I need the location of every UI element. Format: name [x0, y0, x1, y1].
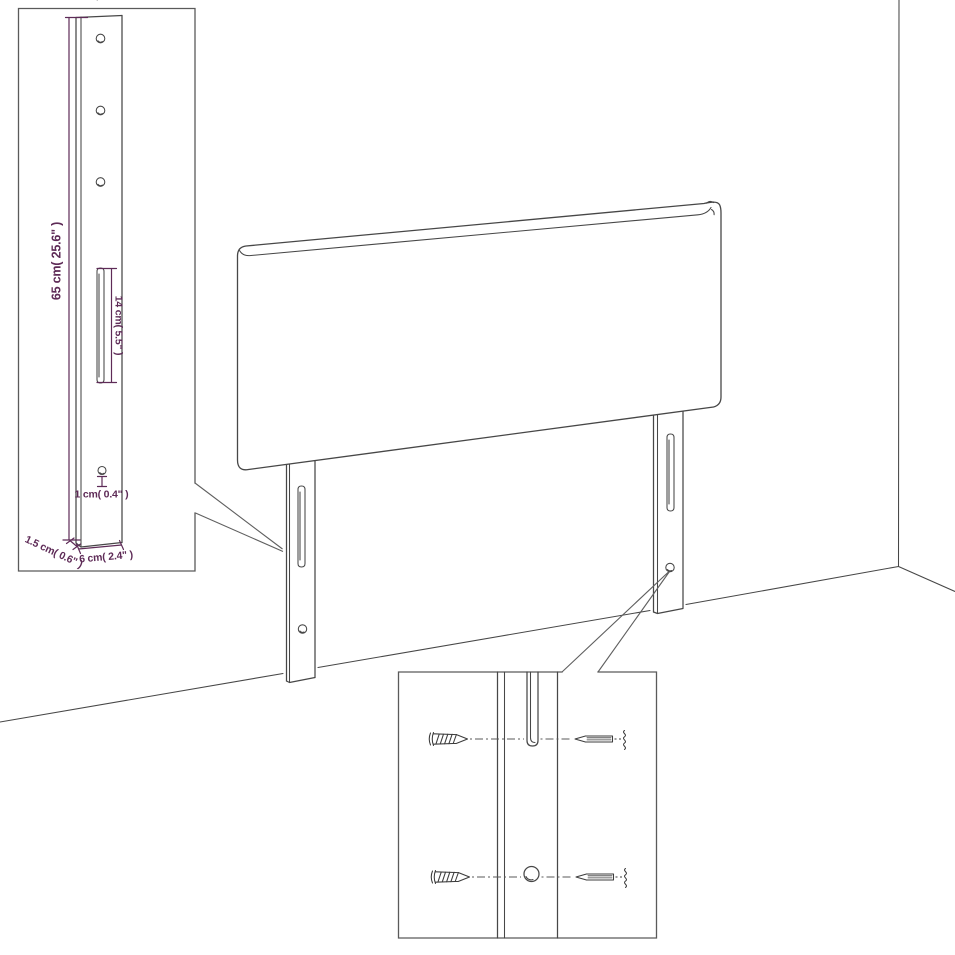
- leg-slot: [667, 434, 674, 511]
- magnified-leg-strip: [498, 672, 558, 938]
- leg-hole: [298, 625, 306, 633]
- screw-side-icon-top: [575, 731, 626, 750]
- mounting-post-drawing: [76, 16, 122, 548]
- screw-head-squiggle: [624, 869, 626, 888]
- dim-height-label: 65 cm( 25.6" ): [49, 222, 63, 300]
- inset-screw-detail: [399, 672, 657, 938]
- headboard: [238, 201, 722, 469]
- callout-lines-post: [195, 483, 283, 552]
- headboard-leg-right: [654, 410, 684, 614]
- diagram-canvas: 65 cm( 25.6" ) 14 cm( 5.5" ) 1 cm( 0.4" …: [0, 0, 955, 955]
- leg-hole: [666, 563, 674, 571]
- floor-line-left: [0, 567, 899, 723]
- post-hole-bottom: [96, 178, 105, 187]
- wall-corner-line: [899, 0, 900, 567]
- dim-slot-label: 14 cm( 5.5" ): [112, 296, 124, 356]
- screw-front-icon-bottom: [431, 871, 469, 884]
- post-hole-top: [96, 34, 105, 43]
- post-hole-middle: [96, 106, 105, 115]
- floor-line-right: [899, 567, 955, 592]
- screw-front-icon-top: [429, 733, 467, 746]
- dim-hole-label: 1 cm( 0.4" ): [75, 489, 129, 501]
- dim-width-label: 6 cm( 2.4" ): [79, 549, 134, 566]
- callout-lines-screw: [562, 572, 670, 673]
- inset-post-dimensions: 65 cm( 25.6" ) 14 cm( 5.5" ) 1 cm( 0.4" …: [19, 9, 196, 572]
- product-dimension-diagram: 65 cm( 25.6" ) 14 cm( 5.5" ) 1 cm( 0.4" …: [0, 0, 955, 955]
- screw-side-icon-bottom: [576, 869, 627, 888]
- headboard-outline: [238, 202, 722, 470]
- dimension-lines: [63, 18, 124, 554]
- magnified-slot: [527, 672, 538, 746]
- dim-hole-line: [98, 477, 107, 487]
- magnified-hole: [524, 867, 539, 882]
- post-slot: [97, 268, 104, 383]
- dim-depth-label: 1.5 cm( 0.6" ): [23, 534, 85, 571]
- screw-head-squiggle: [623, 731, 625, 750]
- dim-height-line: [63, 18, 88, 541]
- post-small-hole: [98, 467, 106, 475]
